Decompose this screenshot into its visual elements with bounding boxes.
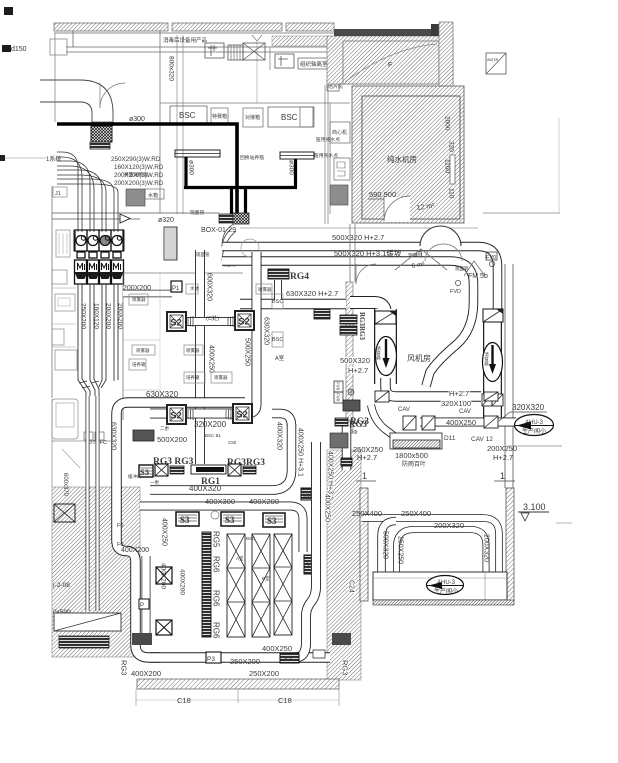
svg-text:250X250: 250X250	[397, 536, 404, 564]
svg-text:A室: A室	[236, 555, 244, 561]
svg-text:400X200: 400X200	[179, 569, 186, 595]
svg-text:培养箱: 培养箱	[132, 361, 146, 368]
svg-text:BSC B1: BSC B1	[205, 433, 222, 438]
svg-text:BSC: BSC	[281, 113, 298, 122]
svg-text:回换站养殖: 回换站养殖	[240, 154, 264, 161]
svg-text:CAV: CAV	[459, 409, 471, 415]
svg-text:320X320: 320X320	[512, 403, 545, 412]
svg-text:250X200: 250X200	[80, 303, 87, 329]
svg-text:ø300: ø300	[188, 160, 195, 175]
svg-text:BOX-01-29: BOX-01-29	[201, 227, 236, 234]
svg-text:特赛箱: 特赛箱	[212, 113, 227, 120]
svg-text:S2: S2	[170, 318, 182, 329]
svg-text:630X320: 630X320	[146, 390, 179, 399]
svg-text:防雨百叶: 防雨百叶	[402, 460, 426, 468]
svg-text:F0: F0	[117, 542, 123, 548]
svg-text:RG3: RG3	[341, 660, 350, 675]
svg-text:培养箱: 培养箱	[186, 374, 200, 381]
svg-text:C18: C18	[177, 696, 191, 705]
svg-text:400X200: 400X200	[131, 669, 161, 678]
svg-text:400X200: 400X200	[249, 497, 279, 506]
svg-text:400X200: 400X200	[160, 563, 167, 589]
svg-text:1: 1	[362, 471, 367, 481]
svg-text:|-2-08: |-2-08	[53, 582, 70, 589]
svg-text:F: F	[388, 62, 392, 69]
svg-text:160X120(3)W.RD: 160X120(3)W.RD	[114, 164, 164, 171]
svg-text:200X250: 200X250	[487, 444, 517, 453]
svg-text:H+2.7: H+2.7	[449, 389, 469, 398]
svg-text:消毒后设备用产品: 消毒后设备用产品	[163, 36, 208, 44]
svg-text:320X200: 320X200	[194, 420, 227, 429]
svg-text:200X200: 200X200	[117, 303, 124, 329]
svg-text:9Φ: 9Φ	[350, 430, 358, 436]
svg-text:BSC: BSC	[246, 536, 256, 541]
svg-text:600x370: 600x370	[62, 473, 68, 497]
svg-text:RG3: RG3	[349, 419, 368, 429]
svg-text:S2: S2	[170, 411, 182, 422]
svg-text:630X320: 630X320	[263, 317, 270, 345]
svg-text:d150: d150	[11, 46, 27, 53]
svg-text:FVD: FVD	[450, 289, 461, 295]
svg-text:400X250 H+3.1: 400X250 H+3.1	[297, 428, 304, 477]
svg-text:喷雾器: 喷雾器	[258, 286, 272, 293]
svg-text:200X320: 200X320	[434, 521, 464, 530]
svg-text:160X120: 160X120	[93, 303, 100, 329]
svg-text:500X320: 500X320	[382, 531, 389, 559]
svg-text:F0: F0	[117, 523, 123, 529]
svg-text:消音器: 消音器	[484, 351, 490, 367]
svg-text:生产闻小: 生产闻小	[434, 587, 458, 595]
svg-text:630X320 H+2.7: 630X320 H+2.7	[286, 289, 338, 298]
svg-text:RG6: RG6	[212, 622, 221, 639]
svg-text:C24: C24	[348, 580, 355, 593]
svg-text:2000: 2000	[444, 116, 451, 131]
svg-text:P3: P3	[207, 656, 215, 663]
svg-text:风机房: 风机房	[407, 353, 431, 363]
svg-text:200X200(3)W.RD: 200X200(3)W.RD	[114, 180, 164, 187]
svg-text:RG6: RG6	[212, 590, 221, 607]
svg-text:生产闻小: 生产闻小	[522, 427, 546, 435]
svg-text:400X320: 400X320	[276, 422, 283, 450]
svg-text:3.100: 3.100	[523, 502, 546, 512]
svg-text:J1: J1	[55, 191, 61, 197]
svg-text:商心机: 商心机	[332, 129, 347, 136]
svg-text:250X200: 250X200	[249, 669, 279, 678]
svg-text:ø300: ø300	[288, 160, 295, 175]
svg-text:500X200: 500X200	[157, 435, 187, 444]
svg-text:水箱: 水箱	[148, 192, 158, 199]
svg-text:RG3: RG3	[120, 660, 129, 675]
svg-text:ø320: ø320	[158, 217, 174, 224]
svg-text:养殖动物室: 养殖动物室	[124, 171, 148, 178]
svg-text:BSC: BSC	[179, 111, 196, 120]
svg-text:RG4: RG4	[290, 272, 309, 282]
svg-text:S3: S3	[284, 656, 292, 663]
svg-text:现面管: 现面管	[190, 209, 205, 216]
svg-text:ø300: ø300	[129, 116, 145, 123]
svg-text:缓冲间: 缓冲间	[128, 473, 142, 480]
svg-text:A室: A室	[275, 354, 285, 362]
svg-text:FV0: FV0	[336, 382, 341, 391]
svg-text:800x320: 800x320	[168, 56, 175, 81]
svg-text:C50: C50	[228, 440, 237, 445]
svg-text:400X250 H+3.1: 400X250 H+3.1	[327, 451, 334, 500]
svg-text:P1: P1	[172, 286, 180, 292]
svg-text:400X250: 400X250	[208, 345, 215, 373]
svg-text:500X320 H+2.7: 500X320 H+2.7	[332, 233, 384, 242]
svg-text:FM 5b: FM 5b	[468, 273, 488, 280]
svg-text:观面管: 观面管	[455, 265, 469, 272]
svg-text:320X100: 320X100	[441, 399, 471, 408]
svg-text:400X200: 400X200	[121, 547, 149, 554]
svg-text:H+2.7: H+2.7	[357, 453, 377, 462]
svg-text:S2: S2	[236, 410, 248, 421]
svg-text:250X200: 250X200	[230, 657, 260, 666]
svg-text:S3: S3	[267, 516, 277, 526]
svg-text:(C处): (C处)	[206, 314, 219, 322]
svg-text:喷雾器: 喷雾器	[186, 347, 200, 354]
svg-text:1800x500: 1800x500	[395, 451, 428, 460]
svg-text:B室: B室	[262, 575, 270, 581]
svg-text:320: 320	[448, 141, 455, 152]
svg-text:200X200: 200X200	[105, 303, 112, 329]
svg-text:CAV 12: CAV 12	[471, 436, 493, 443]
svg-text:400X250: 400X250	[262, 644, 292, 653]
svg-text:H+2.7: H+2.7	[493, 453, 513, 462]
svg-text:观面管: 观面管	[196, 251, 210, 258]
svg-text:400X250: 400X250	[446, 418, 476, 427]
svg-text:BSC: BSC	[272, 299, 283, 305]
svg-text:250X400: 250X400	[352, 509, 382, 518]
svg-text:S3: S3	[303, 492, 311, 499]
svg-text:RG3RG3: RG3RG3	[358, 312, 366, 341]
svg-text:WATER: WATER	[487, 58, 499, 62]
svg-text:250X290(3)W.RD: 250X290(3)W.RD	[111, 156, 161, 163]
svg-text:200X200: 200X200	[123, 285, 151, 292]
svg-text:C18: C18	[278, 696, 292, 705]
svg-text:对接箱: 对接箱	[245, 114, 260, 121]
svg-text:水池: 水池	[190, 285, 199, 291]
svg-text:1系统: 1系统	[46, 155, 61, 163]
svg-text:纯水机房: 纯水机房	[387, 154, 417, 164]
svg-text:600X320: 600X320	[206, 273, 213, 301]
svg-text:S3: S3	[225, 515, 235, 525]
svg-text:RG6: RG6	[212, 556, 221, 573]
svg-text:H+2.7: H+2.7	[348, 366, 368, 375]
svg-text:1: 1	[500, 471, 505, 481]
svg-text:200X320: 200X320	[483, 534, 490, 562]
svg-text:S2: S2	[238, 317, 250, 328]
svg-text:FV0: FV0	[336, 393, 341, 402]
svg-text:1160: 1160	[444, 159, 451, 173]
svg-text:FV0: FV0	[486, 255, 496, 261]
svg-text:S3: S3	[180, 515, 190, 525]
svg-text:250X400: 250X400	[401, 509, 431, 518]
svg-text:RG5: RG5	[212, 531, 221, 548]
svg-text:400X250: 400X250	[324, 494, 331, 522]
svg-text:喷雾器: 喷雾器	[136, 347, 150, 354]
svg-text:组织轴离室: 组织轴离室	[300, 60, 328, 68]
svg-text:400X300: 400X300	[205, 497, 235, 506]
svg-text:110: 110	[448, 188, 455, 199]
svg-text:BSC: BSC	[272, 337, 283, 343]
svg-text:P: P	[140, 603, 144, 609]
svg-text:400X250: 400X250	[161, 518, 168, 546]
svg-text:630X320: 630X320	[110, 422, 117, 450]
svg-text:500X250: 500X250	[244, 338, 251, 366]
svg-text:500X320 H+3.1缓坡: 500X320 H+3.1缓坡	[334, 248, 402, 258]
svg-text:400X320: 400X320	[189, 484, 222, 493]
svg-text:CAV: CAV	[398, 407, 410, 413]
svg-text:消音器: 消音器	[376, 345, 382, 361]
svg-text:D11: D11	[444, 435, 456, 442]
svg-text:喷雾器: 喷雾器	[214, 374, 228, 381]
svg-text:500X320: 500X320	[340, 356, 370, 365]
svg-text:喷雾器: 喷雾器	[132, 296, 146, 303]
